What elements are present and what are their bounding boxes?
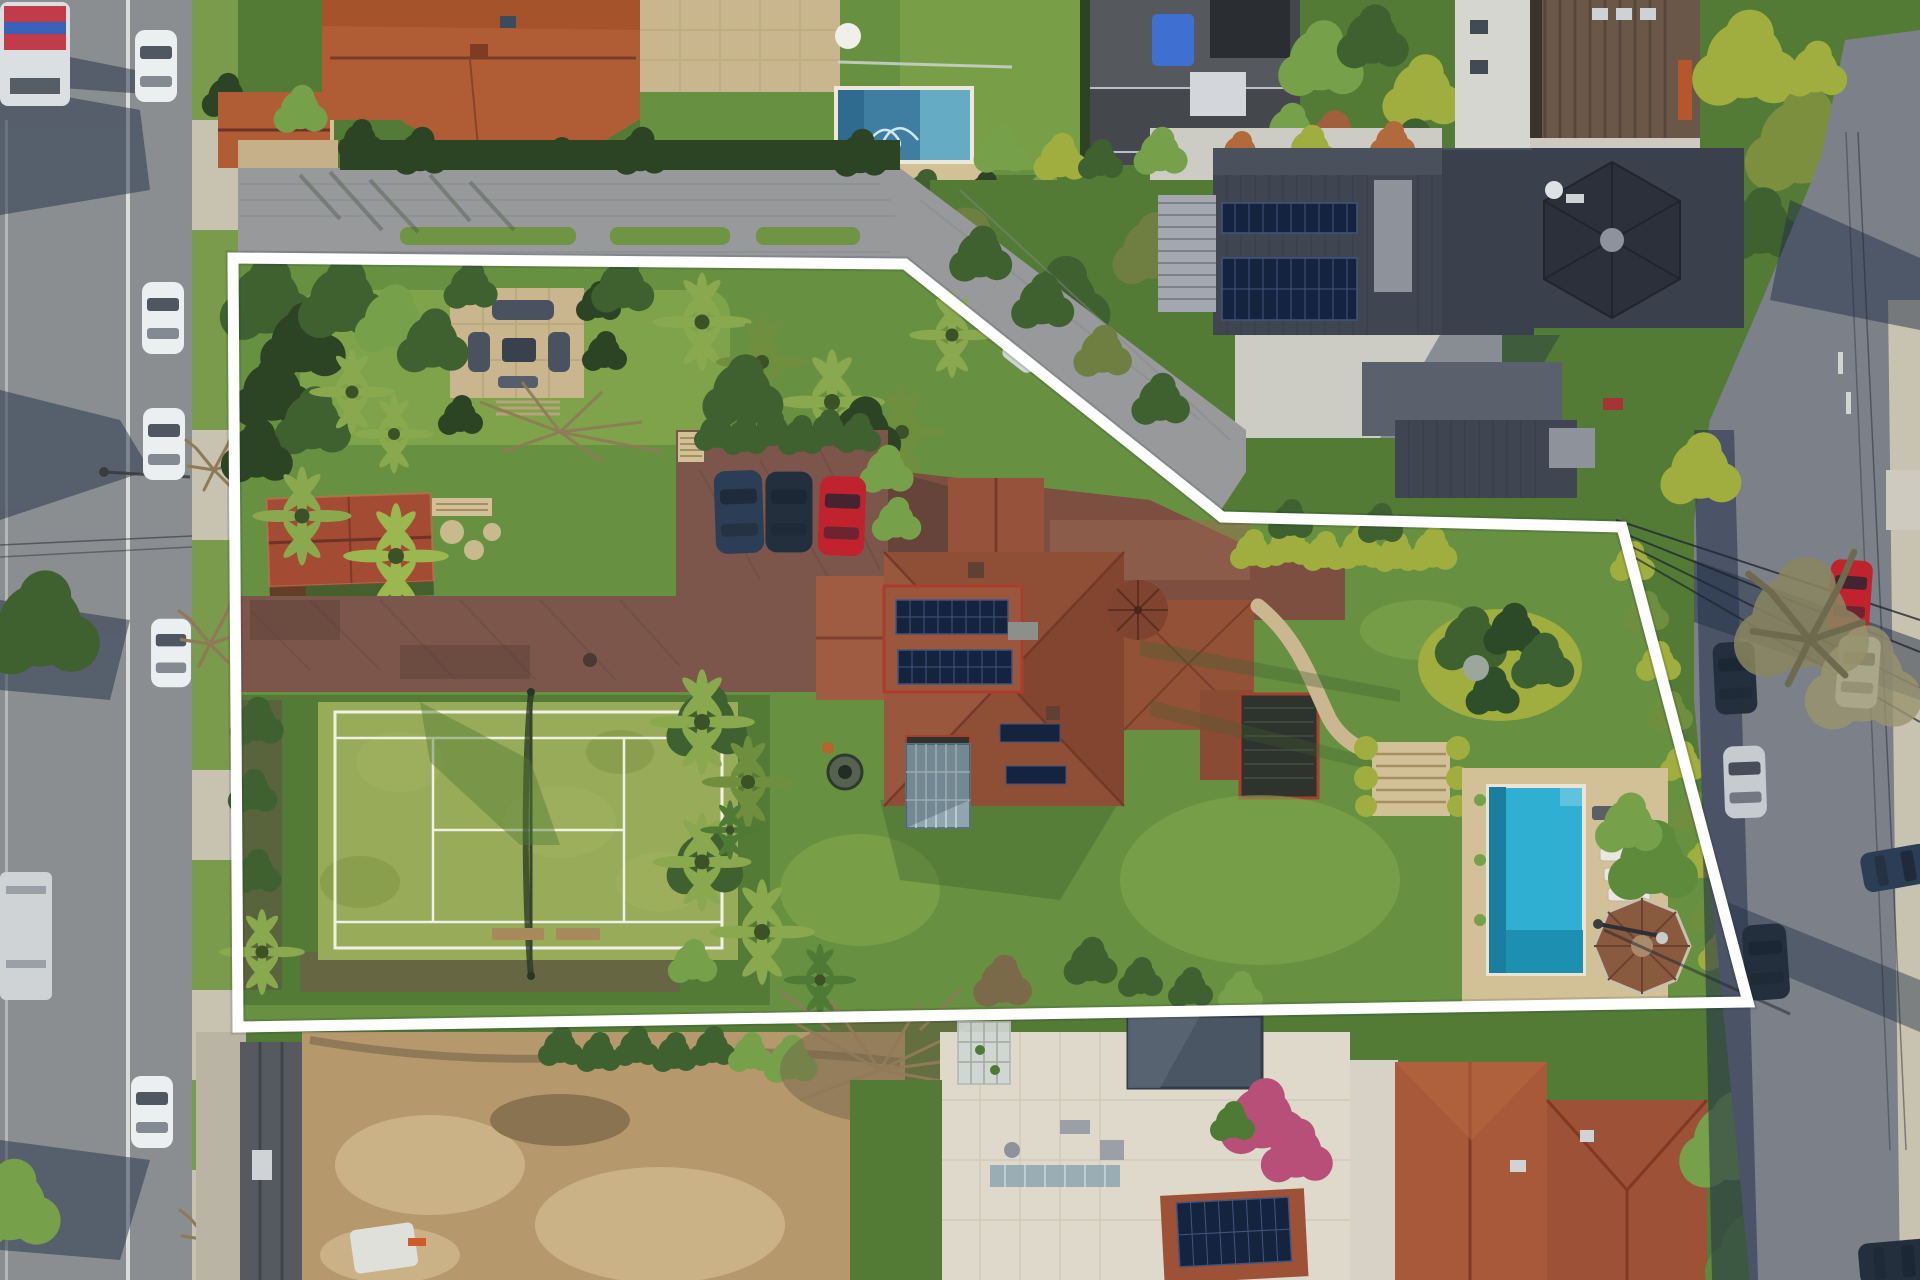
- dormer: [1549, 428, 1595, 468]
- parked-car-blue: [713, 470, 764, 554]
- outdoor-sofa: [468, 332, 490, 372]
- grass-strip: [756, 227, 860, 245]
- glass-walkway: [990, 1165, 1120, 1187]
- outdoor-furniture: [1060, 1120, 1090, 1134]
- parked-car: [131, 1076, 173, 1148]
- person: [583, 653, 597, 667]
- skylight: [1616, 8, 1632, 20]
- mansion-solar-wing: [884, 586, 1022, 692]
- parked-car: [1857, 1238, 1920, 1280]
- white-tarp: [1190, 72, 1246, 116]
- parked-car: [151, 619, 191, 687]
- satellite-dish: [1545, 181, 1563, 199]
- chimney: [968, 562, 984, 578]
- parked-car: [135, 30, 177, 102]
- truck: [0, 2, 70, 106]
- blue-tarp: [1152, 14, 1194, 66]
- garden-steps: [1354, 736, 1470, 817]
- outdoor-sofa: [492, 300, 554, 320]
- greenhouse: [958, 1022, 1010, 1084]
- solar-array: [1222, 258, 1357, 320]
- bench: [492, 928, 544, 940]
- aerial-photo: [0, 0, 1920, 1280]
- outdoor-furniture: [1100, 1140, 1124, 1160]
- outdoor-sofa: [548, 332, 570, 372]
- grass-strip: [610, 227, 730, 245]
- roof-hatch: [1008, 622, 1038, 640]
- parked-car: [1723, 745, 1767, 818]
- conservatory-roof: [906, 736, 970, 828]
- parked-car: [142, 282, 184, 354]
- solar-wing: [1160, 1188, 1308, 1280]
- grass-strip: [400, 227, 576, 245]
- silver-bush: [1463, 655, 1489, 681]
- bench: [556, 928, 600, 940]
- skylight: [500, 16, 516, 28]
- patio-umbrella: [835, 23, 861, 49]
- louver-structure: [1158, 195, 1216, 312]
- outdoor-lounge: [498, 376, 538, 388]
- parked-car-black: [765, 472, 812, 553]
- parked-car-red: [818, 476, 867, 557]
- skylight: [1592, 8, 1608, 20]
- construction-building: [1455, 0, 1700, 150]
- mansion-solar-array: [1000, 724, 1060, 742]
- chimney: [1046, 706, 1060, 720]
- estate-pool: [1488, 786, 1584, 974]
- parked-car: [143, 408, 185, 480]
- pool-area: [1462, 768, 1698, 1008]
- mansion-solar-array: [1006, 766, 1066, 784]
- white-tarp: [349, 1222, 419, 1274]
- aerial-photo-canvas: [0, 0, 1920, 1280]
- turret: [1108, 580, 1168, 640]
- outdoor-table: [502, 338, 536, 362]
- skylight: [1640, 8, 1656, 20]
- solar-array: [1222, 203, 1357, 233]
- terracotta-pot: [822, 742, 834, 754]
